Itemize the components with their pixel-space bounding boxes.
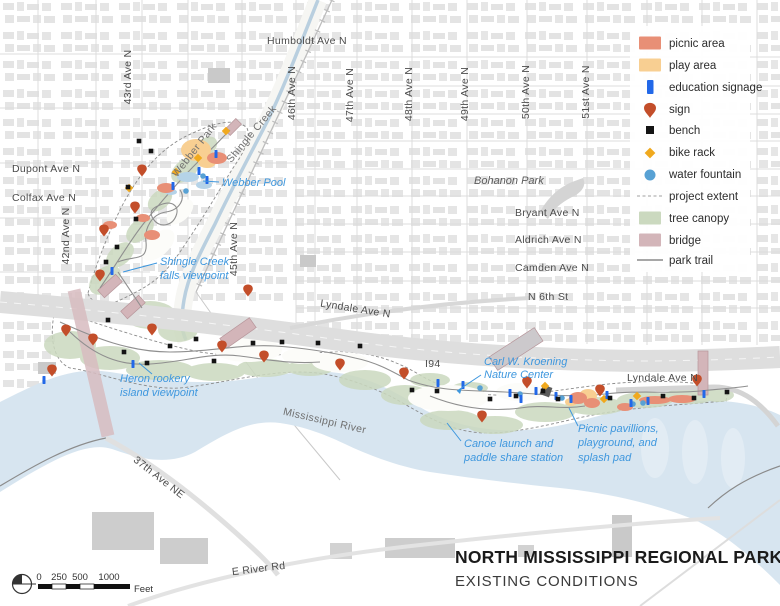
- street-label: Humboldt Ave N: [267, 35, 347, 47]
- education-signage-marker: [111, 267, 114, 275]
- education-signage-marker: [437, 379, 440, 387]
- education-signage-marker: [630, 399, 633, 407]
- feature-label-webber-pool: Webber Pool: [222, 177, 286, 189]
- bench-marker: [212, 359, 217, 364]
- education-signage-icon: [647, 80, 654, 94]
- education-signage-marker: [172, 182, 175, 190]
- bench-marker: [661, 394, 666, 399]
- education-signage-marker: [215, 150, 218, 158]
- feature-label: playground, and: [577, 437, 658, 449]
- street-label: 43rd Ave N: [122, 50, 134, 105]
- feature-label: Nature Center: [484, 369, 554, 381]
- legend: picnic area play area education signage …: [630, 26, 762, 272]
- street-label: N 6th St: [528, 291, 568, 303]
- bench-marker: [251, 341, 256, 346]
- legend-item-label: education signage: [669, 82, 762, 94]
- bench-marker: [316, 341, 321, 346]
- bench-marker: [435, 389, 440, 394]
- bench-marker: [149, 149, 154, 154]
- feature-label: Carl W. Kroening: [484, 356, 568, 368]
- place-label-bohanon-park: Bohanon Park: [474, 175, 544, 187]
- bench-marker: [725, 390, 730, 395]
- picnic-area: [584, 398, 600, 408]
- bench-marker: [692, 396, 697, 401]
- education-signage-marker: [703, 390, 706, 398]
- bench-marker: [168, 344, 173, 349]
- feature-label: falls viewpoint: [160, 270, 229, 282]
- street-label: Colfax Ave N: [12, 192, 76, 204]
- scale-tick: 500: [72, 572, 88, 583]
- map-subtitle: EXISTING CONDITIONS: [455, 573, 639, 590]
- bench-icon: [646, 126, 654, 134]
- legend-item-label: sign: [669, 104, 690, 116]
- street-label: Aldrich Ave N: [515, 234, 582, 246]
- street-label: 46th Ave N: [286, 66, 298, 120]
- map-title: NORTH MISSISSIPPI REGIONAL PARK: [455, 547, 780, 567]
- picnic-area: [144, 230, 160, 240]
- education-signage-marker: [647, 397, 650, 405]
- legend-item-label: bench: [669, 125, 700, 137]
- legend-item-label: bike rack: [669, 147, 715, 159]
- feature-label: Heron rookery: [120, 373, 191, 385]
- feature-label: island viewpoint: [120, 387, 199, 399]
- education-signage-marker: [535, 387, 538, 395]
- education-signage-marker: [132, 360, 135, 368]
- street-label: 47th Ave N: [344, 68, 356, 122]
- legend-item-label: play area: [669, 60, 717, 72]
- bench-marker: [410, 388, 415, 393]
- map-svg: Humboldt Ave N 43rd Ave N 46th Ave N 47t…: [0, 0, 780, 606]
- bench-marker: [280, 340, 285, 345]
- bench-marker: [556, 397, 561, 402]
- legend-item-label: picnic area: [669, 38, 725, 50]
- bench-marker: [134, 217, 139, 222]
- street-label: Dupont Ave N: [12, 163, 80, 175]
- bench-marker: [608, 396, 613, 401]
- bench-marker: [115, 245, 120, 250]
- street-label: 51st Ave N: [580, 65, 592, 119]
- bridge-swatch: [639, 234, 661, 247]
- street-label: I94: [425, 358, 441, 370]
- education-signage-marker: [206, 176, 209, 184]
- street-label: 50th Ave N: [520, 65, 532, 119]
- feature-label: Canoe launch and: [464, 438, 554, 450]
- park-map-canvas: Humboldt Ave N 43rd Ave N 46th Ave N 47t…: [0, 0, 780, 606]
- feature-label: paddle share station: [463, 452, 563, 464]
- bench-marker: [137, 139, 142, 144]
- legend-item-label: tree canopy: [669, 213, 729, 225]
- street-label: 49th Ave N: [459, 67, 471, 121]
- bench-marker: [541, 389, 546, 394]
- bench-marker: [194, 337, 199, 342]
- bench-marker: [488, 397, 493, 402]
- bench-marker: [106, 318, 111, 323]
- scale-tick: 0: [36, 572, 41, 583]
- legend-item-label: park trail: [669, 255, 713, 267]
- bench-marker: [145, 361, 150, 366]
- street-label: Bryant Ave N: [515, 207, 580, 219]
- water-fountain-marker: [640, 400, 646, 406]
- water-fountain-marker: [200, 173, 206, 179]
- play-area-swatch: [639, 59, 661, 72]
- street-label: Camden Ave N: [515, 262, 589, 274]
- water-fountain-icon: [645, 170, 656, 181]
- feature-label: Shingle Creek: [160, 256, 230, 268]
- scale-unit: Feet: [134, 584, 153, 595]
- education-signage-marker: [198, 167, 201, 175]
- scale-tick: 250: [51, 572, 67, 583]
- education-signage-marker: [520, 395, 523, 403]
- scale-tick: 1000: [98, 572, 119, 583]
- bench-marker: [122, 350, 127, 355]
- bench-marker: [104, 260, 109, 265]
- legend-item-label: water fountain: [668, 169, 741, 181]
- legend-item-label: bridge: [669, 235, 701, 247]
- street-label: 45th Ave N: [228, 222, 240, 276]
- bench-marker: [126, 185, 131, 190]
- feature-label: Picnic pavillions,: [578, 423, 659, 435]
- bench-marker: [514, 394, 519, 399]
- street-label: 48th Ave N: [403, 67, 415, 121]
- feature-label: splash pad: [578, 452, 632, 464]
- legend-item-label: project extent: [669, 191, 739, 203]
- street-label: 42nd Ave N: [60, 207, 72, 264]
- tree-canopy-swatch: [639, 212, 661, 225]
- picnic-area-swatch: [639, 37, 661, 50]
- education-signage-marker: [509, 389, 512, 397]
- water-fountain-marker: [183, 188, 189, 194]
- pool-area: [196, 181, 212, 189]
- street-label: Lyndale Ave N: [627, 372, 698, 384]
- education-signage-marker: [43, 376, 46, 384]
- education-signage-marker: [570, 395, 573, 403]
- bench-marker: [358, 344, 363, 349]
- water-fountain-marker: [477, 385, 483, 391]
